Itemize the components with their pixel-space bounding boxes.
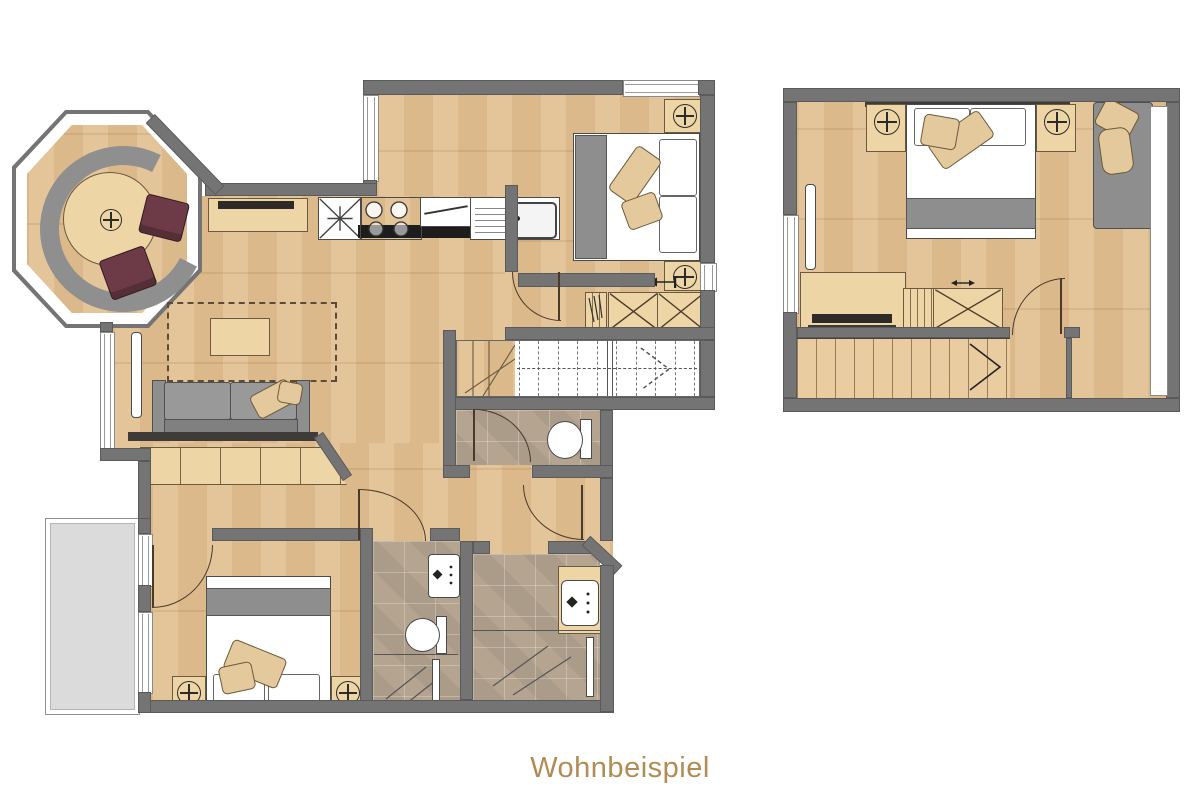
tv xyxy=(812,314,892,323)
sliding-arrows-icon xyxy=(950,279,976,287)
radiator-icon xyxy=(874,109,900,135)
bed-blanket xyxy=(906,198,1036,229)
wardrobe xyxy=(933,288,1003,330)
wall xyxy=(1064,327,1080,338)
window xyxy=(783,215,799,314)
floor-plan-canvas: Wohnbeispiel xyxy=(0,0,1200,800)
radiator-icon xyxy=(1044,109,1070,135)
radiator xyxy=(805,184,816,270)
wall xyxy=(1066,338,1072,398)
caption: Wohnbeispiel xyxy=(470,752,770,785)
window xyxy=(1150,106,1168,396)
door-leaf xyxy=(1060,278,1062,334)
wall xyxy=(783,102,797,215)
wall xyxy=(783,88,1180,102)
crossed-box-icon xyxy=(934,289,1002,329)
nightstand xyxy=(866,104,906,152)
wardrobe-rail xyxy=(903,288,935,330)
upper-floor-plan xyxy=(0,0,1200,800)
wall xyxy=(783,312,797,398)
nightstand xyxy=(1036,104,1076,152)
cushion xyxy=(919,113,960,151)
wall xyxy=(1166,102,1180,398)
stair-arrow-icon xyxy=(968,342,1004,392)
wall xyxy=(783,398,1180,412)
cushion xyxy=(1097,126,1135,176)
wall xyxy=(797,327,1010,338)
